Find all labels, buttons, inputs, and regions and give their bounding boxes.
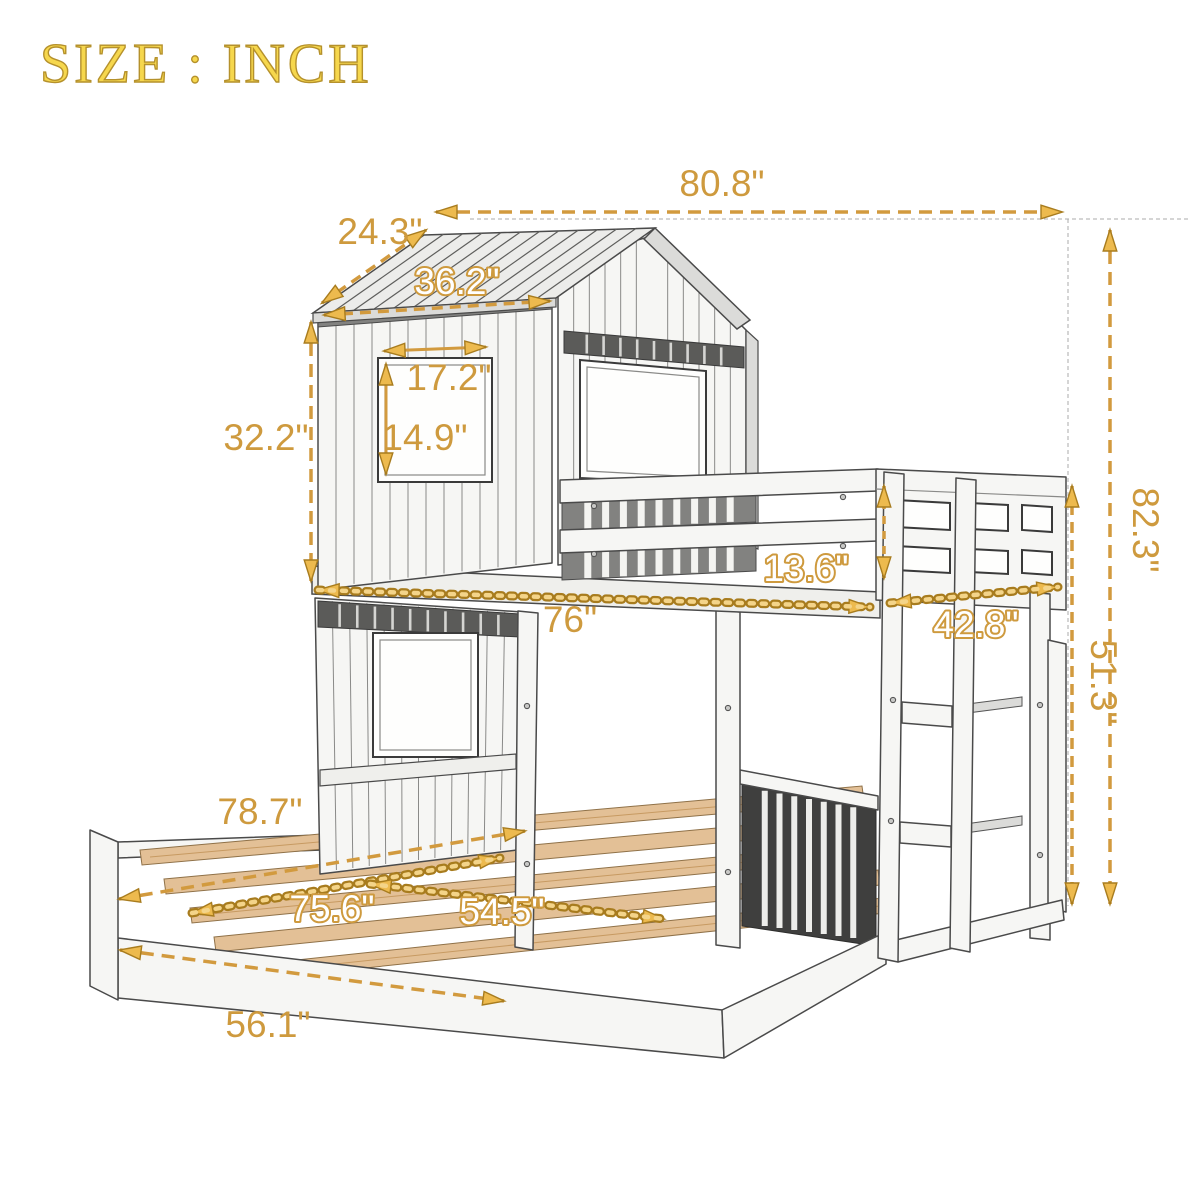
ladder-rung-2 xyxy=(900,822,951,847)
lower-window xyxy=(373,633,478,757)
dimension-house-height: 32.2" xyxy=(223,322,311,581)
dimension-label: 75.6" xyxy=(289,888,374,929)
dimension-label: 80.8" xyxy=(679,163,764,204)
page-title: SIZE : INCH xyxy=(40,33,372,95)
bunk-bed-dimension-diagram: SIZE : INCH xyxy=(0,0,1200,1200)
dimension-label: 78.7" xyxy=(217,791,302,832)
dimension-total-length: 80.8" xyxy=(436,163,1062,212)
dimension-label: 82.3" xyxy=(1125,487,1166,572)
dimension-label: 54.5" xyxy=(459,891,544,932)
dimension-label: 36.2" xyxy=(414,261,499,302)
dimension-label: 24.3" xyxy=(337,211,422,252)
right-front-leg xyxy=(1030,592,1050,940)
gable-window xyxy=(580,360,706,484)
dimension-label: 42.8" xyxy=(933,604,1018,645)
dimension-label: 17.2" xyxy=(406,357,491,398)
dimension-total-height: 82.3" xyxy=(1110,230,1166,904)
dimension-label: 32.2" xyxy=(223,417,308,458)
lower-foot-panel-slats xyxy=(765,791,854,938)
ladder-rung-1 xyxy=(902,702,952,727)
diagram-canvas: SIZE : INCH xyxy=(0,0,1200,1200)
platform-right-end xyxy=(722,932,886,1058)
dimension-label: 51.3" xyxy=(1083,639,1124,724)
doorway-post-right xyxy=(716,610,740,948)
right-back-leg xyxy=(1048,640,1066,912)
dimension-label: 14.9" xyxy=(382,417,467,458)
platform-left-end xyxy=(90,830,118,1000)
dimension-label: 13.6" xyxy=(763,548,848,589)
dimension-label: 76" xyxy=(543,599,597,640)
dimension-upper-height: 51.3" xyxy=(1072,486,1124,904)
dimension-label: 56.1" xyxy=(225,1004,310,1045)
